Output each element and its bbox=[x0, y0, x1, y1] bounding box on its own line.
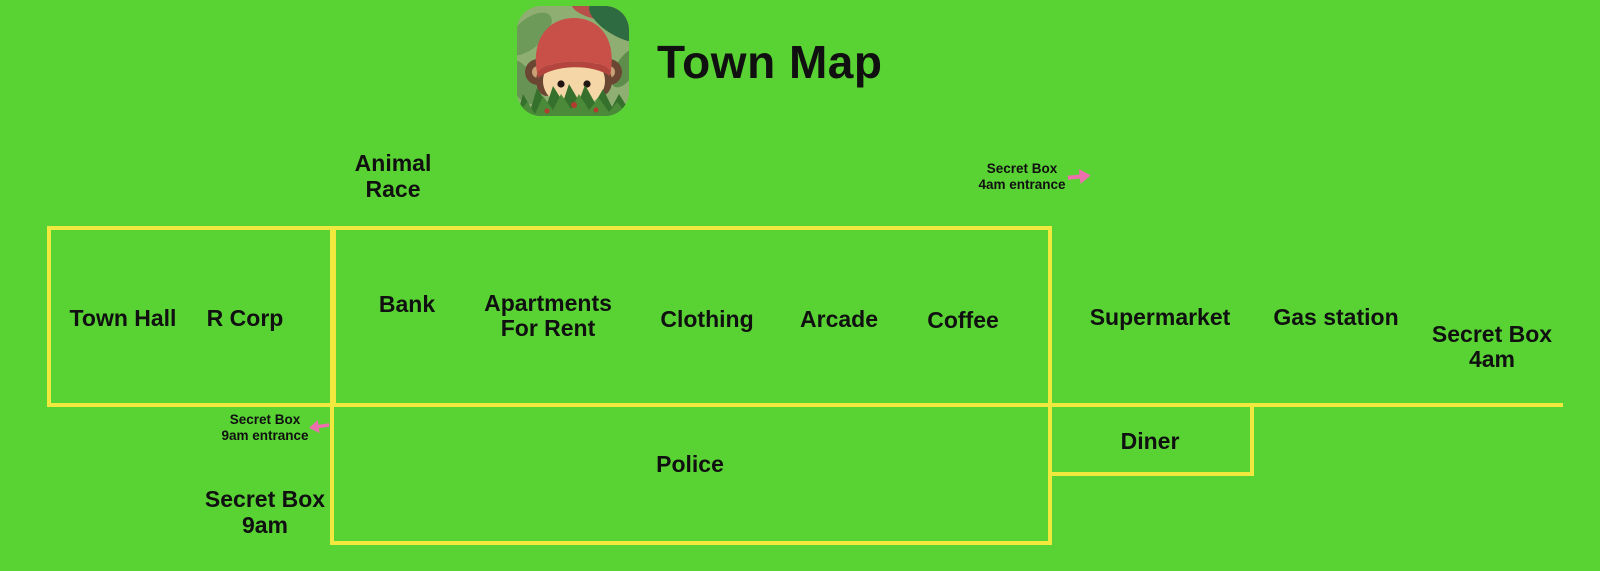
arrow-right-icon bbox=[1067, 167, 1093, 191]
label-animal-race: Animal Race bbox=[355, 150, 432, 202]
label-arcade: Arcade bbox=[800, 306, 878, 332]
monkey-icon bbox=[517, 6, 629, 116]
label-secret-box-9am: Secret Box 9am bbox=[205, 486, 325, 538]
label-police: Police bbox=[656, 451, 724, 477]
label-bank: Bank bbox=[379, 291, 435, 317]
label-diner: Diner bbox=[1121, 428, 1180, 454]
label-r-corp: R Corp bbox=[207, 305, 284, 331]
label-gas-station: Gas station bbox=[1273, 304, 1398, 330]
label-secret-box-9am-entrance: Secret Box 9am entrance bbox=[221, 412, 308, 444]
label-secret-box-4am: Secret Box 4am bbox=[1432, 322, 1552, 372]
arrow-left-icon bbox=[307, 418, 332, 441]
label-apartments-for-rent: Apartments For Rent bbox=[484, 291, 612, 341]
label-coffee: Coffee bbox=[927, 307, 999, 333]
label-town-hall: Town Hall bbox=[70, 305, 177, 331]
label-supermarket: Supermarket bbox=[1090, 304, 1231, 330]
label-secret-box-4am-entrance: Secret Box 4am entrance bbox=[978, 161, 1065, 193]
page-title: Town Map bbox=[657, 35, 882, 89]
town-map-canvas: Town Map Animal Race Secret Box 4am entr… bbox=[0, 0, 1600, 571]
label-clothing: Clothing bbox=[660, 306, 753, 332]
